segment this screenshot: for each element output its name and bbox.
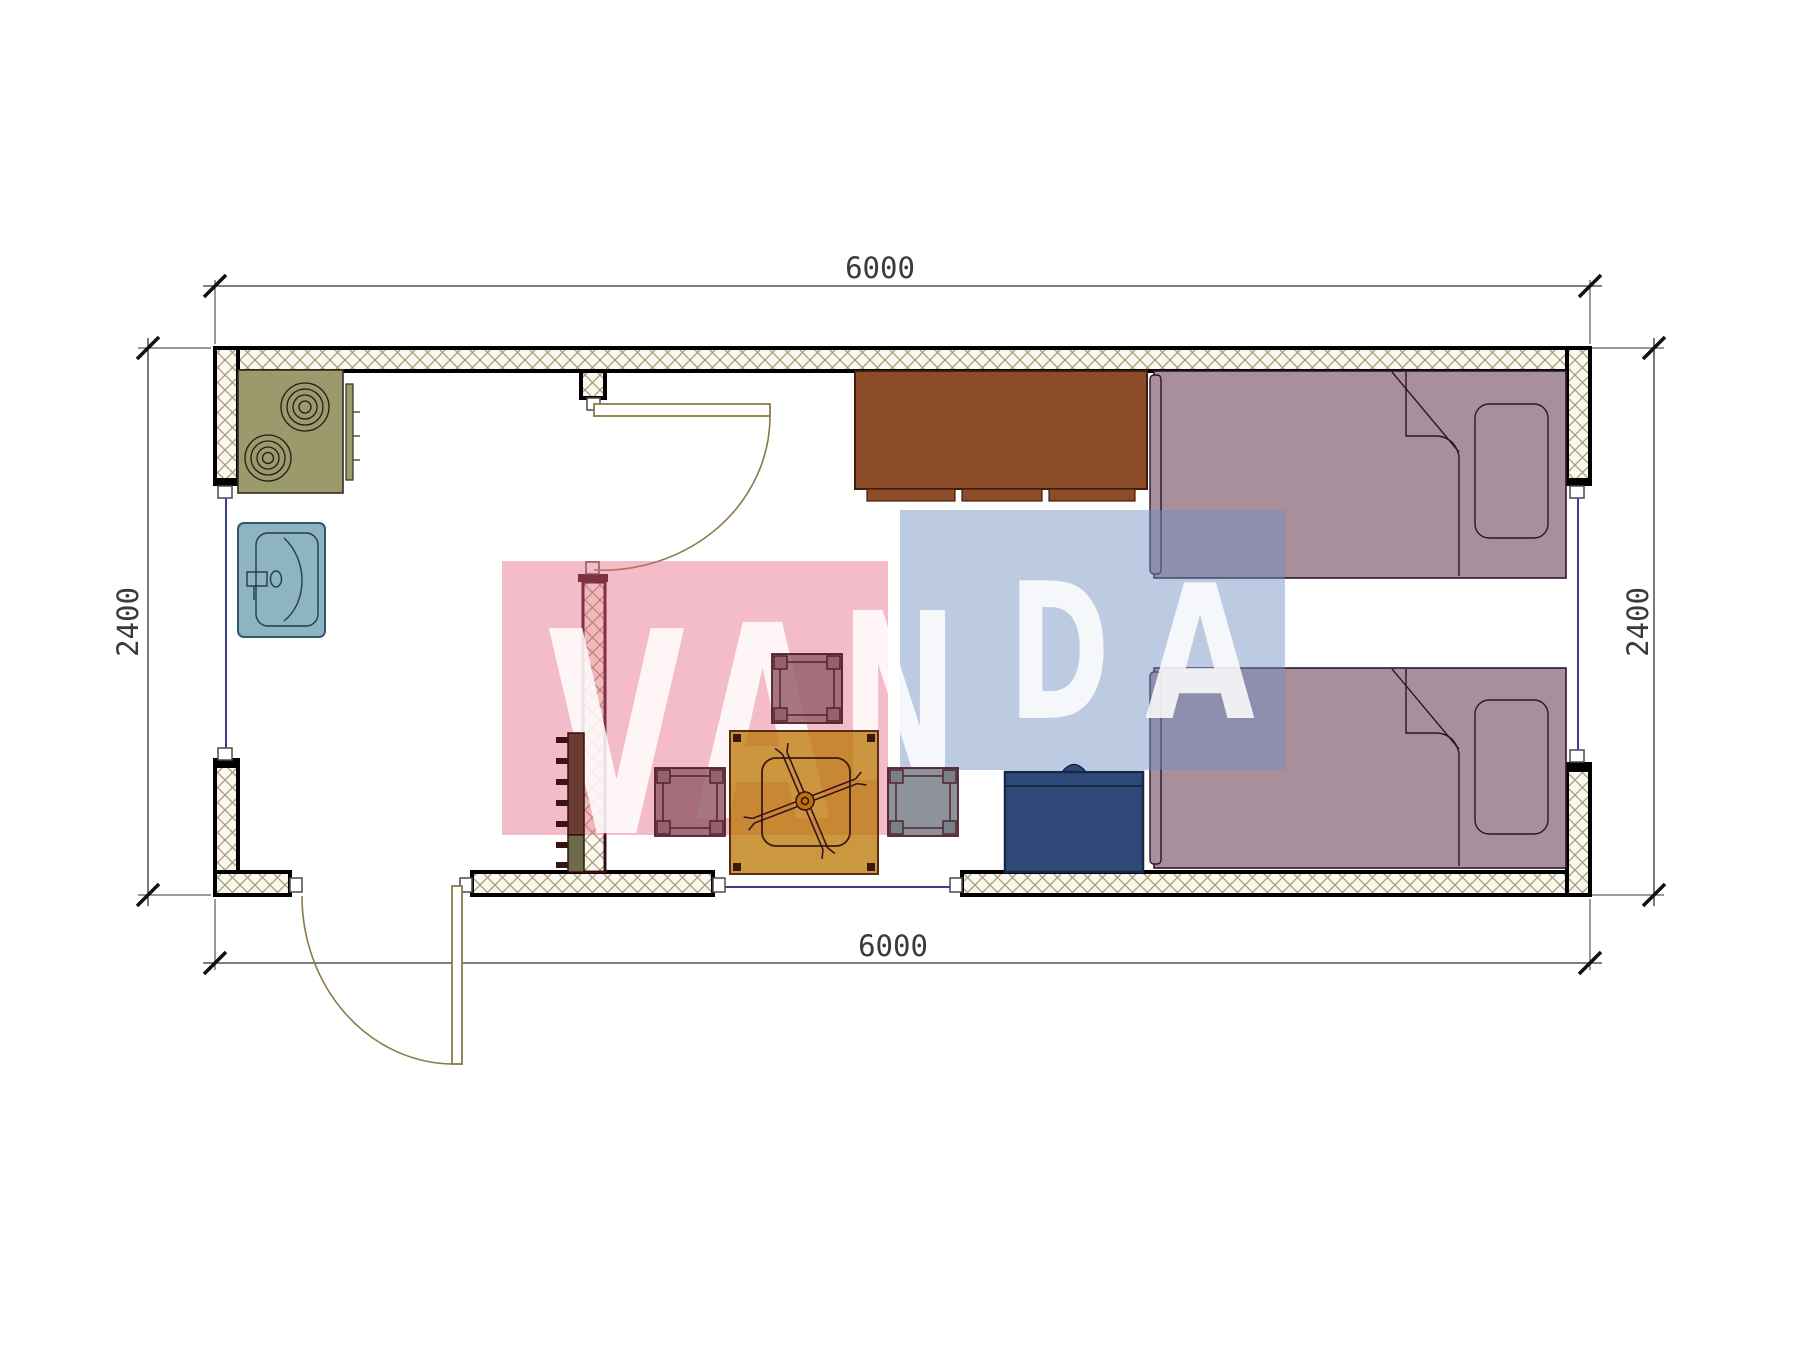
stool-right bbox=[888, 768, 958, 836]
wall-right-upper bbox=[1567, 348, 1590, 480]
dimension-label-left: 2400 bbox=[111, 587, 145, 657]
stove-control-strip bbox=[346, 384, 353, 480]
interior-door-swing-arc bbox=[594, 416, 770, 570]
wall-right-lower bbox=[1567, 770, 1590, 895]
stove bbox=[238, 370, 360, 493]
dimension-label-bottom: 6000 bbox=[858, 929, 928, 963]
interior-door-leaf bbox=[594, 404, 770, 416]
bed-bottom-pillow bbox=[1475, 700, 1548, 834]
desk-feet bbox=[867, 489, 1135, 501]
stove-control-ticks bbox=[353, 412, 360, 460]
bed-top-pillow bbox=[1475, 404, 1548, 538]
sink bbox=[238, 523, 325, 637]
door-jamb-stub bbox=[581, 371, 605, 398]
top-extension-lines bbox=[215, 280, 1590, 344]
dimension-label-right: 2400 bbox=[1621, 587, 1655, 657]
floor-plan-canvas: 6000 6000 2400 2400 bbox=[0, 0, 1800, 1350]
stool-left bbox=[655, 768, 725, 836]
chest bbox=[1005, 765, 1143, 873]
entry-door-leaf bbox=[452, 886, 462, 1064]
table bbox=[725, 722, 886, 880]
left-extension-lines bbox=[138, 348, 211, 895]
desk bbox=[855, 371, 1147, 501]
wall-left-upper bbox=[215, 348, 238, 480]
watermark-letter-a2: A bbox=[1145, 545, 1255, 762]
floor-plan-drawing: 6000 6000 2400 2400 bbox=[0, 0, 1800, 1350]
wall-top bbox=[215, 348, 1590, 371]
wall-bottom-segment-b bbox=[962, 872, 1590, 895]
stool-top bbox=[772, 654, 842, 723]
watermark-letter-d: D bbox=[1008, 543, 1110, 763]
entry-door-swing-arc bbox=[302, 896, 452, 1064]
wall-bottom-left-leg bbox=[215, 872, 290, 895]
dimension-label-top: 6000 bbox=[845, 251, 915, 285]
